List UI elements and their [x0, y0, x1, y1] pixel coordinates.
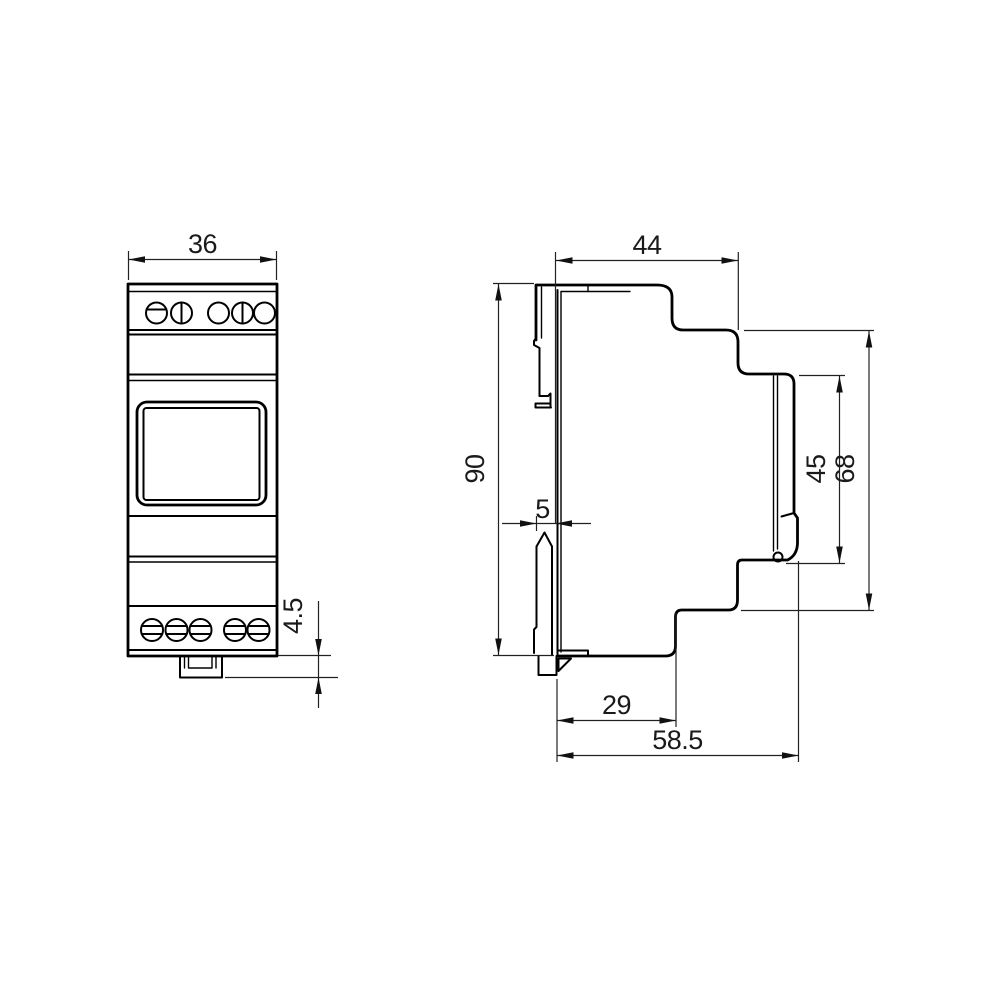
side-lower-din-clip: [534, 533, 571, 676]
arrowhead: [520, 520, 537, 527]
arrowhead: [836, 547, 843, 564]
arrowhead: [722, 257, 739, 264]
arrowhead: [315, 678, 322, 695]
dimensions: 36 4.5 44 90 5: [129, 229, 875, 762]
dim-label-68: 68: [830, 454, 860, 483]
front-section-lines: [128, 292, 277, 651]
terminal-screw: [166, 619, 188, 641]
terminal-screw: [254, 303, 275, 324]
front-view: [128, 284, 277, 678]
dim-width-36: 36: [129, 229, 277, 280]
terminal-screw: [224, 619, 246, 641]
front-display-window: [137, 402, 266, 505]
dim-label-45: 45: [801, 454, 831, 483]
dim-label-90: 90: [460, 454, 490, 483]
display-bezel: [137, 402, 266, 505]
dim-label-36: 36: [188, 229, 217, 259]
side-front-cover: [774, 376, 795, 562]
terminal-screw: [248, 619, 270, 641]
side-top-seam: [561, 286, 630, 292]
arrowhead: [557, 717, 574, 724]
arrowhead: [315, 639, 322, 656]
front-bottom-terminals: [141, 619, 270, 641]
dim-total-58-5: 58.5: [557, 561, 799, 762]
terminal-screw: [146, 303, 167, 324]
arrowhead: [495, 639, 502, 656]
dim-label-29: 29: [602, 690, 631, 720]
arrowhead: [260, 256, 277, 263]
clip-wedge: [559, 659, 572, 672]
arrowhead: [836, 376, 843, 393]
dim-label-4-5: 4.5: [278, 598, 308, 634]
side-view: [534, 285, 798, 675]
display-glass: [144, 408, 260, 500]
dim-label-5: 5: [535, 494, 550, 524]
dim-clip-5: 5: [502, 494, 591, 531]
front-din-tab: [180, 656, 222, 678]
terminal-screw: [141, 619, 163, 641]
technical-drawing-page: 36 4.5 44 90 5: [0, 0, 1000, 1000]
technical-drawing: 36 4.5 44 90 5: [0, 0, 1000, 1000]
arrowhead: [782, 752, 799, 759]
arrowhead: [866, 331, 873, 348]
dim-height-90: 90: [460, 284, 554, 656]
dim-tab-4-5: 4.5: [225, 598, 338, 708]
side-upper-din-hook: [534, 285, 551, 408]
terminal-screw: [190, 619, 212, 641]
arrowhead: [495, 284, 502, 301]
dim-label-44: 44: [632, 230, 662, 260]
front-body-outline: [128, 284, 277, 656]
arrowhead: [866, 594, 873, 611]
arrowhead: [557, 752, 574, 759]
front-top-terminals: [146, 303, 275, 324]
side-body-outline: [536, 285, 798, 656]
dim-depth-44: 44: [556, 230, 739, 524]
dim-label-58-5: 58.5: [652, 725, 703, 755]
arrowhead: [556, 257, 573, 264]
arrowhead: [660, 717, 677, 724]
terminal-screw: [208, 303, 229, 324]
arrowhead: [129, 256, 146, 263]
